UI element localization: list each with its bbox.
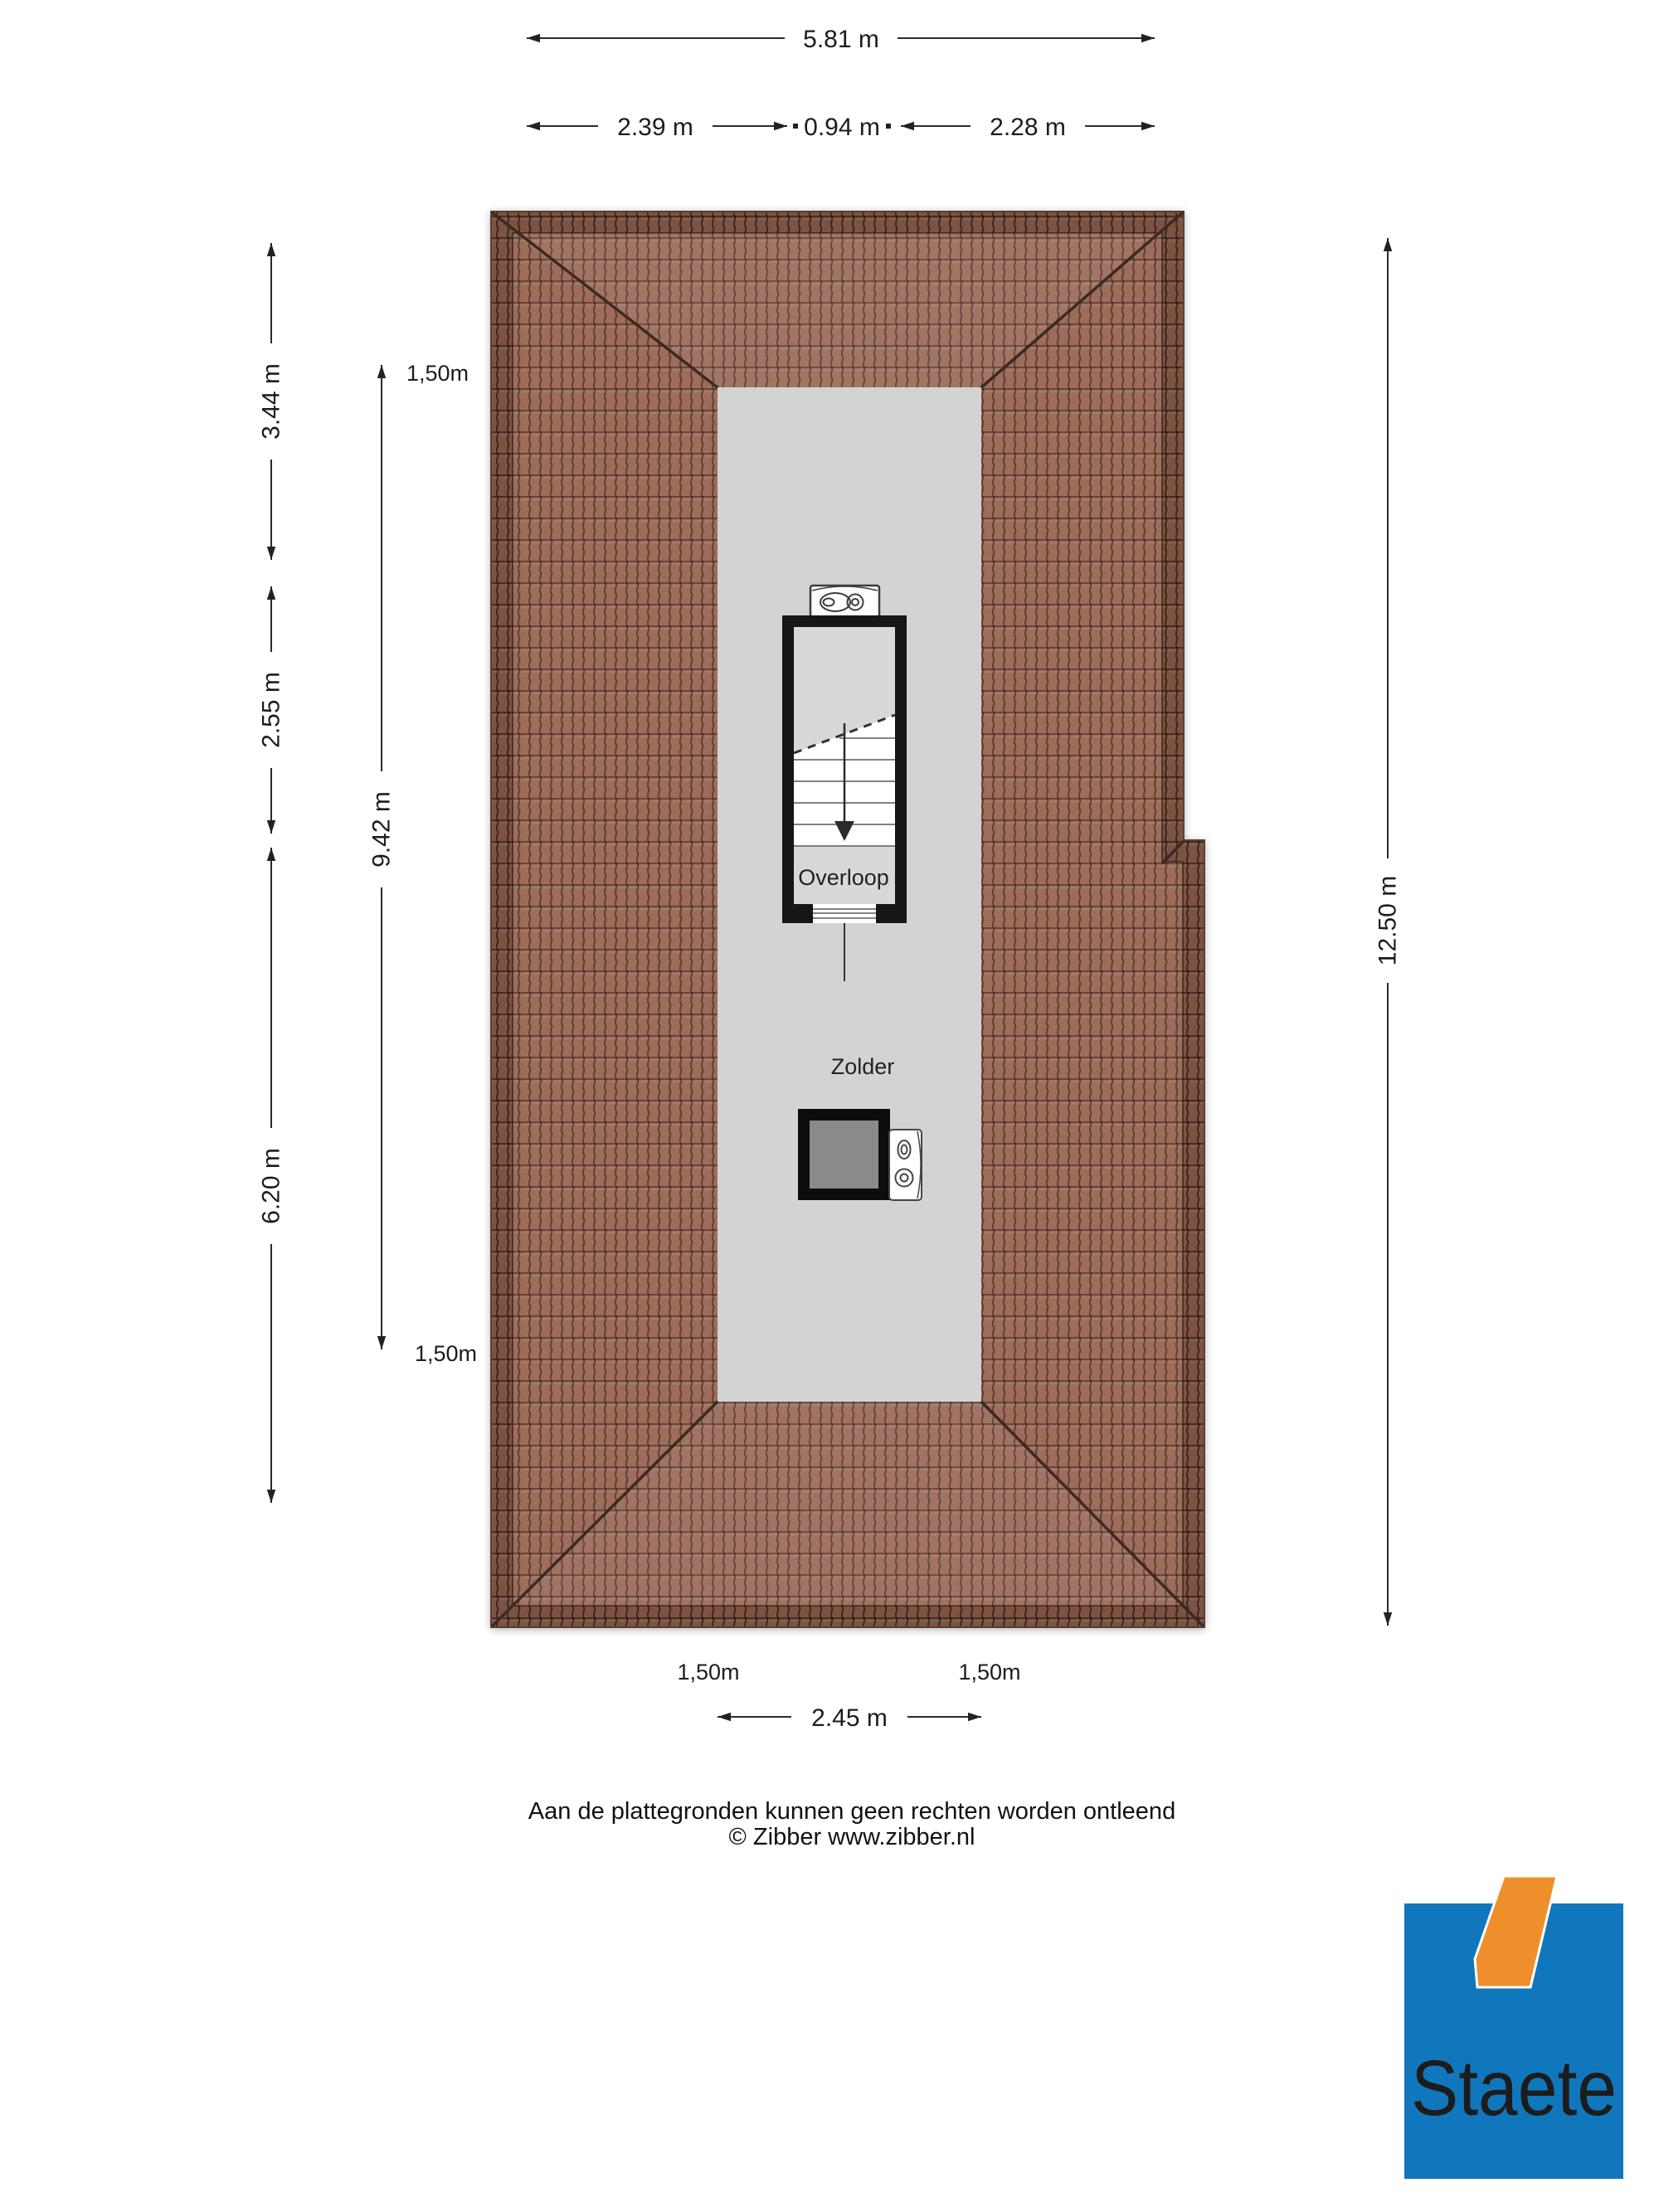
staete-logo: Staete — [1404, 1876, 1623, 2179]
headroom-label-top-left: 1,50m — [406, 361, 469, 386]
vent-unit-icon — [889, 1130, 922, 1200]
dim-tick — [793, 124, 798, 129]
dim-bottom-width-label: 2.45 m — [811, 1704, 888, 1732]
dim-top-seg1-label: 2.39 m — [617, 114, 693, 141]
dim-left-seg1-label: 3.44 m — [258, 363, 285, 440]
disclaimer-line1: Aan de plattegronden kunnen geen rechten… — [528, 1798, 1175, 1825]
chimney — [798, 1109, 890, 1200]
floorplan-canvas: Overloop Zolder — [0, 0, 1659, 2212]
copyright-line: © Zibber www.zibber.nl — [729, 1824, 975, 1850]
roof-window-icon — [810, 586, 879, 618]
footer: Aan de plattegronden kunnen geen rechten… — [528, 1798, 1175, 1850]
staete-logo-text: Staete — [1411, 2044, 1617, 2132]
room-label-zolder: Zolder — [831, 1054, 895, 1079]
headroom-label-bottom-left: 1,50m — [415, 1341, 477, 1366]
dim-top-seg3-label: 2.28 m — [990, 114, 1066, 141]
roof-plan: Overloop Zolder — [491, 211, 1204, 1627]
dim-right-total-label: 12.50 m — [1374, 876, 1402, 965]
dim-left-seg3-label: 6.20 m — [258, 1148, 285, 1224]
headroom-label-bottom-a: 1,50m — [677, 1660, 739, 1685]
dim-top-total-label: 5.81 m — [803, 26, 879, 53]
headroom-label-bottom-b: 1,50m — [958, 1660, 1020, 1685]
room-label-overloop: Overloop — [798, 865, 889, 890]
dim-left-seg2-label: 2.55 m — [258, 672, 285, 748]
dim-inner-vertical-label: 9.42 m — [368, 791, 396, 868]
dim-tick — [886, 124, 891, 129]
dim-top-seg2-label: 0.94 m — [804, 114, 880, 141]
floorplan-page: Overloop Zolder — [0, 0, 1659, 2212]
